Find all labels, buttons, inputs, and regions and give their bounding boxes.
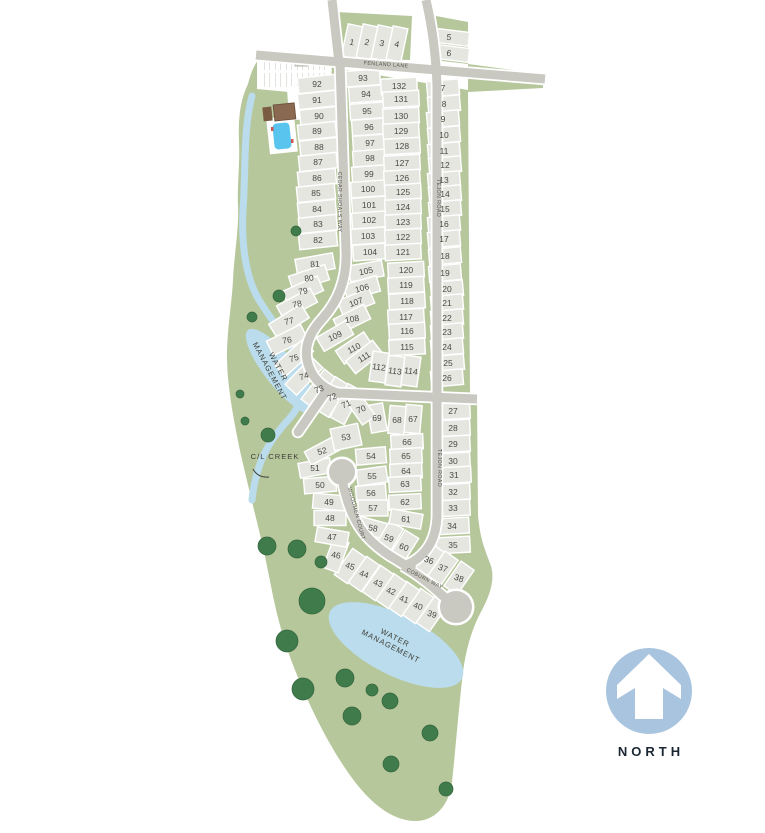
lot-number: 35 [448, 540, 458, 550]
lot-number: 81 [310, 259, 321, 270]
lot-number: 92 [312, 79, 322, 89]
clubhouse [273, 103, 296, 121]
cross-road [338, 393, 477, 399]
lot-number: 56 [366, 488, 376, 498]
lot-number: 11 [440, 146, 449, 156]
tree-icon [247, 312, 257, 322]
lot-number: 55 [367, 471, 377, 481]
lot-number: 49 [324, 497, 334, 507]
lot-number: 69 [372, 413, 382, 423]
lot-number: 22 [442, 313, 452, 323]
lot-number: 7 [441, 83, 446, 93]
lot-number: 29 [448, 439, 458, 449]
site-plan-page: 1234569291908988878685848382818079787776… [0, 0, 765, 833]
tree-icon [292, 678, 314, 700]
lot-number: 101 [362, 200, 376, 210]
tree-icon [299, 588, 325, 614]
lot-number: 61 [401, 514, 412, 525]
cul-de-sac [329, 459, 355, 485]
lot-number: 80 [304, 272, 315, 283]
tree-icon [343, 707, 361, 725]
tree-icon [422, 725, 438, 741]
lot-number: 91 [312, 95, 322, 105]
lot-number: 51 [310, 463, 320, 473]
lot-number: 63 [400, 479, 410, 489]
lot-number: 131 [394, 94, 408, 104]
lot-number: 54 [366, 451, 376, 461]
tree-icon [241, 417, 249, 425]
north-label: NORTH [618, 744, 684, 759]
lot-number: 31 [449, 470, 459, 480]
lot-number: 100 [361, 184, 375, 194]
lot-number: 99 [364, 169, 374, 179]
lot-number: 125 [396, 187, 410, 197]
cul-de-sac [440, 591, 472, 623]
tree-icon [336, 669, 354, 687]
lot-number: 102 [362, 215, 376, 225]
lot-number: 129 [394, 126, 408, 136]
lot-number: 83 [313, 219, 323, 229]
tree-icon [258, 537, 276, 555]
lot-number: 27 [448, 406, 458, 416]
lot-number: 21 [442, 298, 452, 308]
lot-number: 8 [442, 99, 447, 109]
lot-number: 65 [401, 451, 411, 461]
lot-number: 97 [365, 138, 375, 148]
lot-number: 16 [439, 219, 449, 229]
tree-icon [383, 756, 399, 772]
tree-icon [236, 390, 244, 398]
lot-number: 57 [368, 503, 378, 513]
site-plan-map: 1234569291908988878685848382818079787776… [0, 0, 765, 833]
lot-number: 18 [440, 251, 450, 261]
lot-number: 128 [395, 141, 409, 151]
lot-number: 84 [312, 204, 322, 214]
lot-number: 86 [312, 173, 322, 183]
lot-number: 122 [396, 232, 410, 242]
lot-number: 48 [325, 513, 335, 523]
north-indicator: NORTH [606, 648, 692, 759]
lot-number: 117 [399, 312, 413, 322]
tree-icon [439, 782, 453, 796]
lot-number: 76 [281, 334, 292, 346]
lot-number: 127 [395, 158, 409, 168]
lot-number: 119 [399, 280, 413, 290]
lot-number: 47 [327, 532, 337, 542]
tree-icon [288, 540, 306, 558]
pool-lounger [291, 139, 294, 143]
lot-number: 17 [439, 234, 449, 244]
lot-number: 10 [439, 130, 449, 140]
lot-number: 132 [392, 81, 406, 91]
lot-number: 26 [442, 373, 452, 383]
lot-number: 95 [362, 106, 372, 116]
lot-number: 23 [442, 327, 452, 337]
lot-number: 28 [448, 423, 458, 433]
street-name-label: TEJON ROAD [435, 179, 441, 217]
lot-number: 34 [447, 521, 457, 531]
cabana [262, 107, 272, 122]
lot-number: 116 [400, 326, 414, 336]
lot-number: 87 [313, 157, 323, 167]
tree-icon [261, 428, 275, 442]
lot-number: 126 [395, 173, 409, 183]
lot-number: 46 [330, 549, 341, 561]
street-name-label: TEJON ROAD [436, 449, 442, 487]
lot-number: 96 [364, 122, 374, 132]
lot-number: 32 [448, 487, 458, 497]
lot-number: 53 [341, 431, 352, 442]
lot-number: 130 [394, 111, 408, 121]
lot-number: 85 [311, 188, 321, 198]
lot-number: 115 [400, 342, 414, 352]
lot-number: 114 [404, 365, 419, 377]
lot-number: 103 [361, 231, 375, 241]
street-name-label: CEDAR SHOALS WAY [336, 172, 342, 233]
tree-icon [382, 693, 398, 709]
lot-number: 12 [440, 160, 450, 170]
lot-number: 88 [314, 142, 324, 152]
lot-number: 98 [365, 153, 375, 163]
lot-number: 124 [396, 202, 410, 212]
lot-number: 90 [314, 111, 324, 121]
tree-icon [366, 684, 378, 696]
lot-number: 79 [297, 285, 308, 297]
tree-icon [273, 290, 285, 302]
lot-number: 104 [363, 247, 377, 257]
lot-number: 25 [443, 358, 453, 368]
lot-number: 120 [399, 265, 413, 275]
tree-icon [276, 630, 298, 652]
lot-number: 89 [312, 126, 322, 136]
lot-number: 94 [361, 89, 371, 99]
lot-number: 62 [400, 497, 410, 507]
tree-icon [315, 556, 327, 568]
lot-number: 24 [442, 342, 452, 352]
lot-number: 121 [396, 247, 410, 257]
lot-number: 33 [448, 503, 458, 513]
lot-number: 112 [372, 361, 387, 373]
creek-label: C/L CREEK [251, 452, 300, 461]
lot-number: 118 [400, 296, 414, 306]
lot-number: 82 [313, 235, 323, 245]
lot-number: 64 [401, 466, 411, 476]
lot-number: 68 [392, 415, 402, 425]
lot-number: 113 [388, 365, 403, 377]
lot-number: 50 [315, 480, 325, 490]
lot-number: 93 [358, 73, 368, 83]
pool [272, 122, 292, 150]
pool-lounger [271, 127, 274, 131]
lot-number: 123 [396, 217, 410, 227]
lot-number: 19 [440, 268, 450, 278]
tree-icon [291, 226, 301, 236]
lot-number: 58 [367, 522, 378, 534]
lot-number: 67 [408, 414, 418, 424]
lot-number: 20 [442, 284, 452, 294]
lot-number: 30 [448, 456, 458, 466]
lot-number: 9 [441, 114, 446, 124]
lot-number: 66 [402, 437, 412, 447]
